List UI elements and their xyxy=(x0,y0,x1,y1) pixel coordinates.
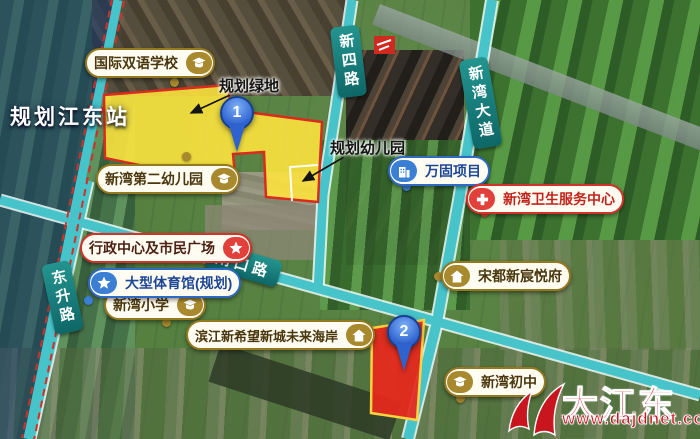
poi-anchor-dot xyxy=(182,152,191,161)
poi-stadium-planned: 大型体育馆(规划) xyxy=(88,268,241,298)
poi-wangu-project: 万固项目 xyxy=(388,156,490,186)
poi-anchor-dot xyxy=(170,78,179,87)
building-icon xyxy=(391,160,417,182)
planned-kindergarten-label: 规划幼儿园 xyxy=(330,137,405,158)
poi-xinwan-health-center: 新湾卫生服务中心 xyxy=(466,184,624,214)
medical-cross-icon xyxy=(469,188,495,210)
map-pin-1: 1 xyxy=(220,96,254,152)
poi-label: 大型体育馆(规划) xyxy=(118,273,239,293)
poi-binjiang-newhope-future-coast: 滨江新希望新城未来海岸 xyxy=(186,320,375,350)
poi-label: 滨江新希望新城未来海岸 xyxy=(188,326,345,345)
watermark-site-name: 大江东网 xyxy=(562,376,700,439)
star-icon xyxy=(91,272,117,294)
house-icon xyxy=(444,265,470,287)
dajiangdong-logo-sails xyxy=(506,381,568,439)
pin-tail xyxy=(396,344,412,371)
graduation-cap-icon xyxy=(211,168,237,190)
poi-label: 国际双语学校 xyxy=(87,53,185,73)
watermark-site-url: www.dajdnet.com xyxy=(562,409,700,429)
planned-station-label: 规划江东站 xyxy=(10,101,130,131)
graduation-cap-icon xyxy=(186,52,212,74)
pin-tail xyxy=(229,125,245,152)
red-building-mark xyxy=(374,36,395,54)
map-pin-2: 2 xyxy=(387,315,421,371)
poi-xinwan-second-kindergarten: 新湾第二幼儿园 xyxy=(96,164,240,194)
poi-international-bilingual-school: 国际双语学校 xyxy=(85,48,215,78)
poi-anchor-dot xyxy=(84,296,93,305)
star-icon xyxy=(223,237,249,259)
poi-songdu-xinchen-yuefu: 宋都新宸悦府 xyxy=(441,261,571,291)
poi-admin-center-citizen-square: 行政中心及市民广场 xyxy=(80,233,252,263)
poi-label: 新湾小学 xyxy=(106,295,176,315)
house-icon xyxy=(346,324,372,346)
poi-label: 行政中心及市民广场 xyxy=(82,238,222,258)
satellite-map: 规划江东站 规划绿地 规划幼儿园 新四路 新湾大道 东升路 闸口路 国际双语学校… xyxy=(0,0,700,439)
poi-label: 新湾第二幼儿园 xyxy=(98,169,210,189)
planned-green-space-label: 规划绿地 xyxy=(219,75,279,96)
poi-label: 宋都新宸悦府 xyxy=(471,266,569,286)
poi-label: 新湾卫生服务中心 xyxy=(496,189,622,209)
graduation-cap-icon xyxy=(447,371,473,393)
poi-label: 万固项目 xyxy=(418,161,488,181)
